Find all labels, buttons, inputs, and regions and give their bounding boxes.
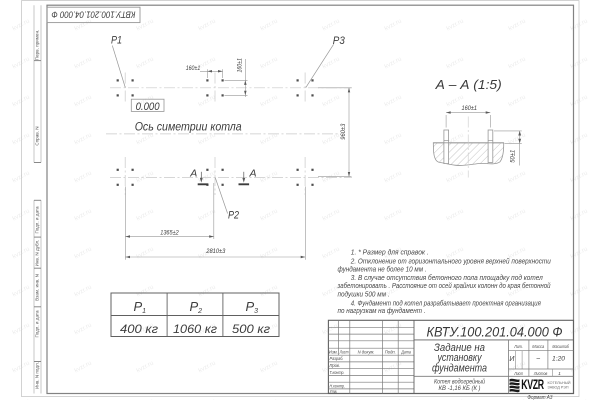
svg-text:1. * Размер для справок .: 1. * Размер для справок .	[351, 248, 429, 257]
svg-text:А – А (1:5): А – А (1:5)	[435, 78, 502, 92]
svg-text:2810±3: 2810±3	[205, 248, 225, 255]
svg-text:Р2: Р2	[228, 210, 240, 222]
svg-text:Лист: Лист	[513, 371, 523, 376]
svg-text:1:20: 1:20	[552, 356, 565, 363]
svg-text:Н.контр.: Н.контр.	[330, 383, 346, 389]
svg-text:А: А	[248, 167, 256, 179]
svg-text:960±3: 960±3	[340, 123, 347, 139]
svg-text:подушки 500 мм .: подушки 500 мм .	[338, 289, 390, 298]
svg-text:Масса: Масса	[532, 344, 544, 349]
svg-text:400 кг: 400 кг	[120, 322, 158, 336]
svg-text:КВТУ.100.201.04.000 Ф: КВТУ.100.201.04.000 Ф	[427, 323, 563, 339]
svg-text:Листов: Листов	[533, 371, 548, 376]
svg-text:Разраб.: Разраб.	[330, 356, 344, 362]
svg-text:50±1: 50±1	[510, 149, 517, 162]
svg-text:500 кг: 500 кг	[232, 322, 270, 336]
svg-text:А: А	[189, 167, 197, 179]
svg-text:КВ -1,16 КБ (К ): КВ -1,16 КБ (К )	[439, 385, 481, 392]
svg-text:0.000: 0.000	[136, 101, 160, 113]
svg-text:Р3: Р3	[333, 35, 346, 47]
svg-text:N докум.: N докум.	[358, 349, 375, 355]
svg-text:160±1: 160±1	[237, 58, 244, 73]
svg-text:Инв. N подл.: Инв. N подл.	[35, 362, 40, 389]
svg-text:Изм.: Изм.	[329, 349, 338, 355]
svg-text:Утв.: Утв.	[330, 389, 338, 395]
svg-text:Перв. примен.: Перв. примен.	[35, 30, 40, 61]
svg-text:Масштаб: Масштаб	[552, 344, 569, 349]
svg-text:Ось симетрии котла: Ось симетрии котла	[135, 120, 242, 134]
svg-text:Формат А3: Формат А3	[527, 395, 552, 400]
svg-text:Пров.: Пров.	[330, 363, 341, 369]
svg-text:Подп. и дата: Подп. и дата	[35, 310, 40, 338]
svg-text:Взам. инв. N: Взам. инв. N	[35, 274, 40, 301]
svg-text:по нагрузкам на фундамент .: по нагрузкам на фундамент .	[338, 306, 426, 315]
svg-text:Лит.: Лит.	[513, 344, 522, 349]
svg-text:Подп. и дата: Подп. и дата	[35, 206, 40, 234]
svg-text:KVZR: KVZR	[521, 377, 544, 392]
svg-text:ЗАВОД РЭП: ЗАВОД РЭП	[548, 384, 569, 389]
svg-text:160±1: 160±1	[462, 105, 478, 112]
svg-text:160±1: 160±1	[186, 65, 201, 72]
svg-text:Справ. N: Справ. N	[35, 126, 40, 145]
svg-text:–: –	[536, 355, 541, 362]
svg-text:Лист: Лист	[339, 349, 349, 355]
svg-text:Подп.: Подп.	[385, 349, 396, 355]
svg-text:Р1: Р1	[111, 35, 122, 47]
svg-text:1060 кг: 1060 кг	[173, 322, 217, 336]
svg-text:Дата: Дата	[401, 349, 411, 355]
svg-text:Т.контр.: Т.контр.	[330, 370, 345, 376]
svg-text:1365±2: 1365±2	[160, 230, 179, 237]
svg-text:Инв. N дубл.: Инв. N дубл.	[35, 240, 40, 267]
svg-text:КВТУ.100.201.04.000 Ф: КВТУ.100.201.04.000 Ф	[52, 10, 136, 20]
svg-text:фундамента: фундамента	[432, 363, 487, 375]
svg-text:1: 1	[558, 371, 561, 377]
